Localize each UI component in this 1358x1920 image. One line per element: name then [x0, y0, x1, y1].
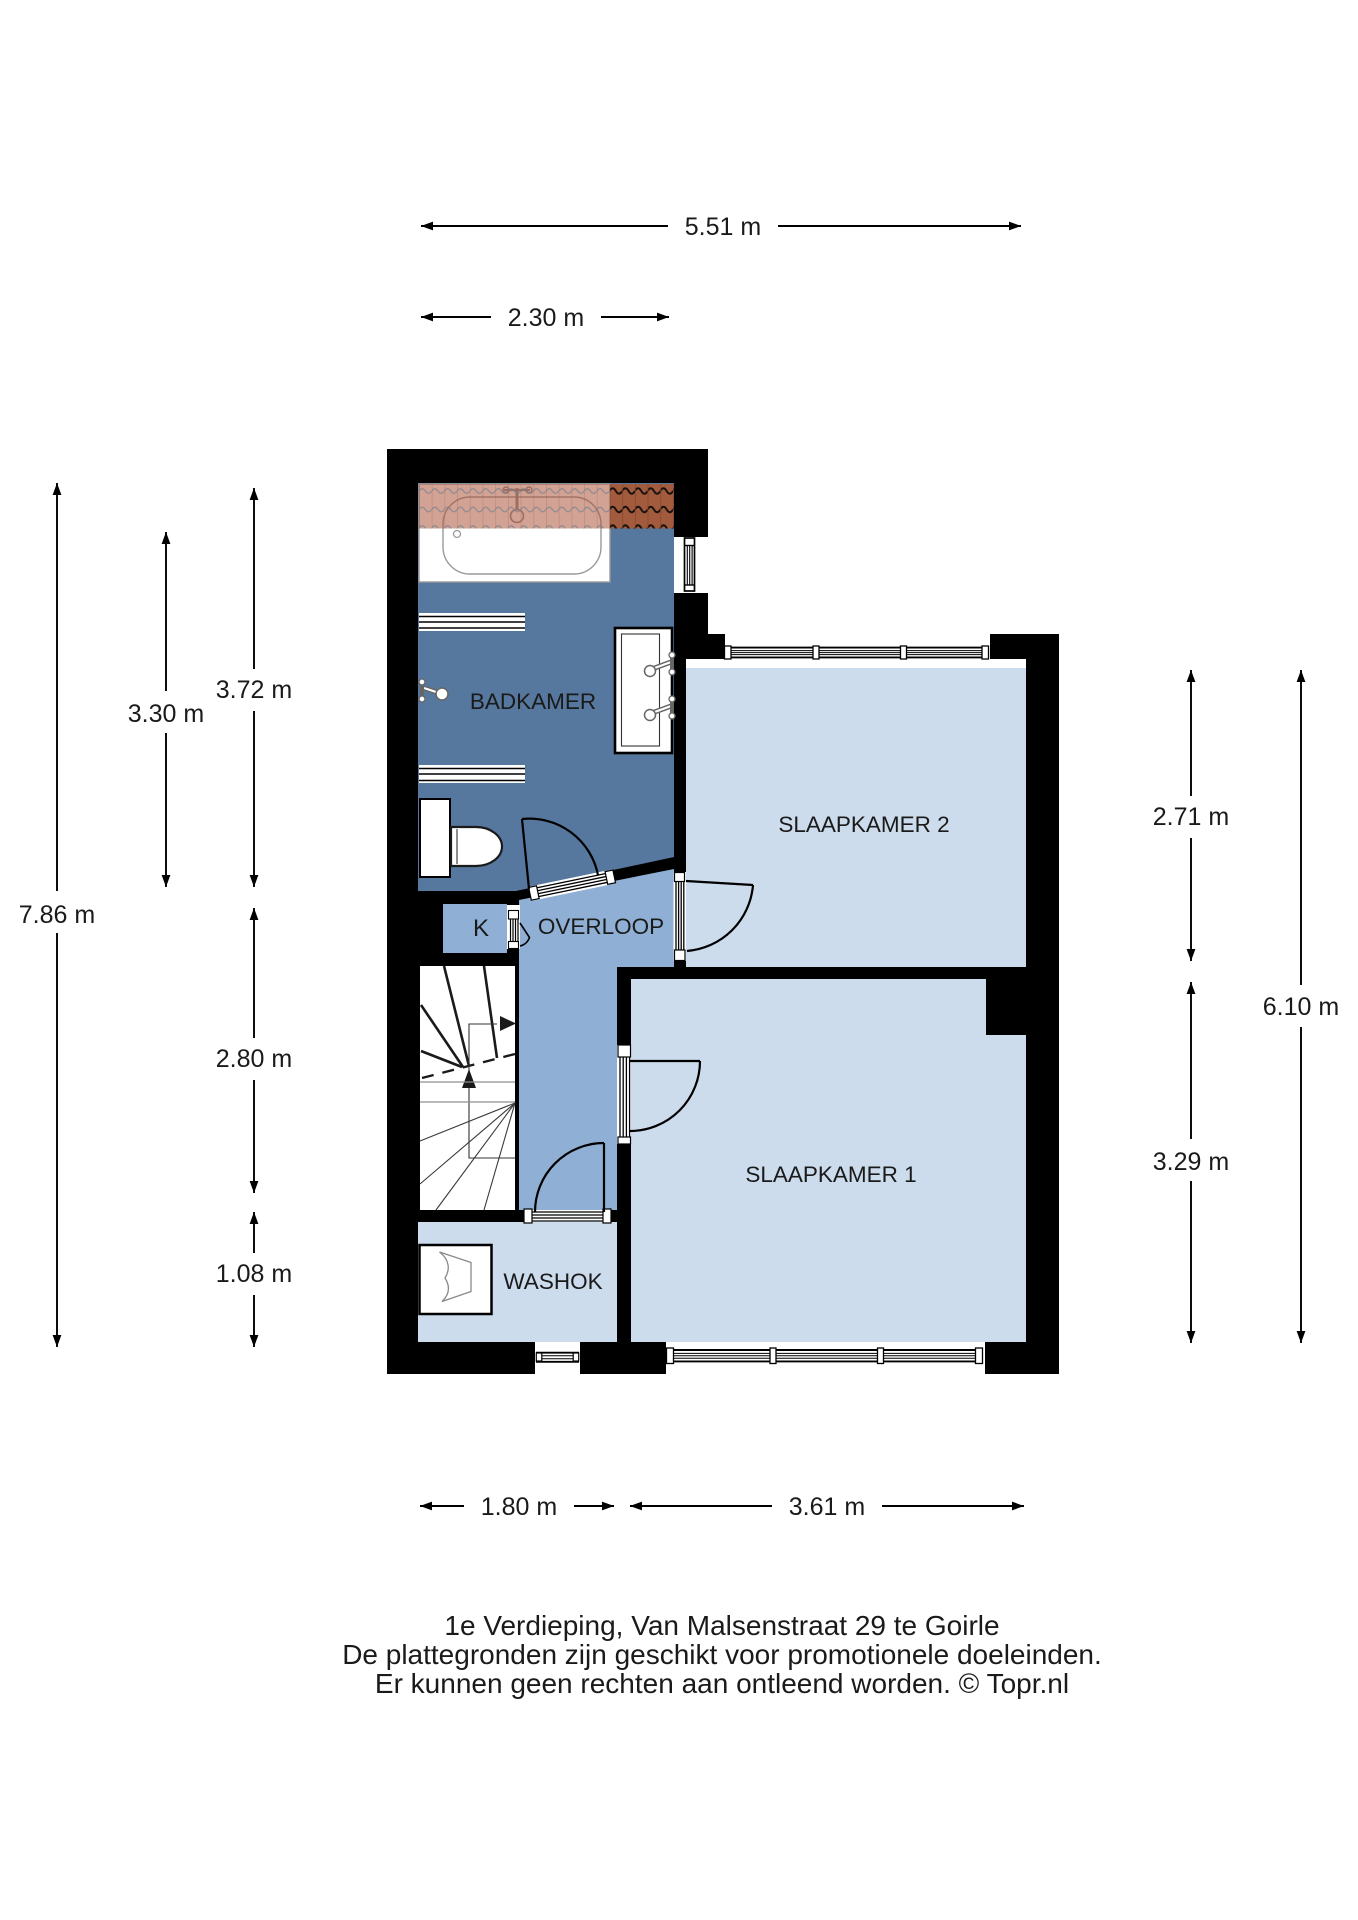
svg-text:3.72 m: 3.72 m — [216, 676, 292, 704]
svg-text:3.29 m: 3.29 m — [1153, 1148, 1229, 1176]
svg-text:WASHOK: WASHOK — [503, 1269, 602, 1294]
svg-text:BADKAMER: BADKAMER — [470, 689, 596, 714]
svg-text:3.30 m: 3.30 m — [128, 700, 204, 728]
svg-text:6.10 m: 6.10 m — [1263, 993, 1339, 1021]
svg-text:2.80 m: 2.80 m — [216, 1045, 292, 1073]
svg-text:3.61 m: 3.61 m — [789, 1493, 865, 1521]
svg-text:1.80 m: 1.80 m — [481, 1493, 557, 1521]
svg-text:Er kunnen geen rechten aan ont: Er kunnen geen rechten aan ontleend word… — [375, 1668, 1069, 1699]
svg-text:7.86 m: 7.86 m — [19, 901, 95, 929]
svg-text:SLAAPKAMER 1: SLAAPKAMER 1 — [745, 1162, 916, 1187]
svg-text:K: K — [473, 915, 489, 942]
svg-text:1.08 m: 1.08 m — [216, 1260, 292, 1288]
svg-text:De plattegronden zijn geschikt: De plattegronden zijn geschikt voor prom… — [342, 1639, 1102, 1670]
svg-text:OVERLOOP: OVERLOOP — [538, 914, 664, 939]
svg-text:1e Verdieping, Van Malsenstraa: 1e Verdieping, Van Malsenstraat 29 te Go… — [444, 1610, 999, 1641]
svg-text:SLAAPKAMER 2: SLAAPKAMER 2 — [778, 812, 949, 837]
svg-text:2.30 m: 2.30 m — [508, 304, 584, 332]
svg-text:5.51 m: 5.51 m — [685, 213, 761, 241]
svg-text:2.71 m: 2.71 m — [1153, 803, 1229, 831]
